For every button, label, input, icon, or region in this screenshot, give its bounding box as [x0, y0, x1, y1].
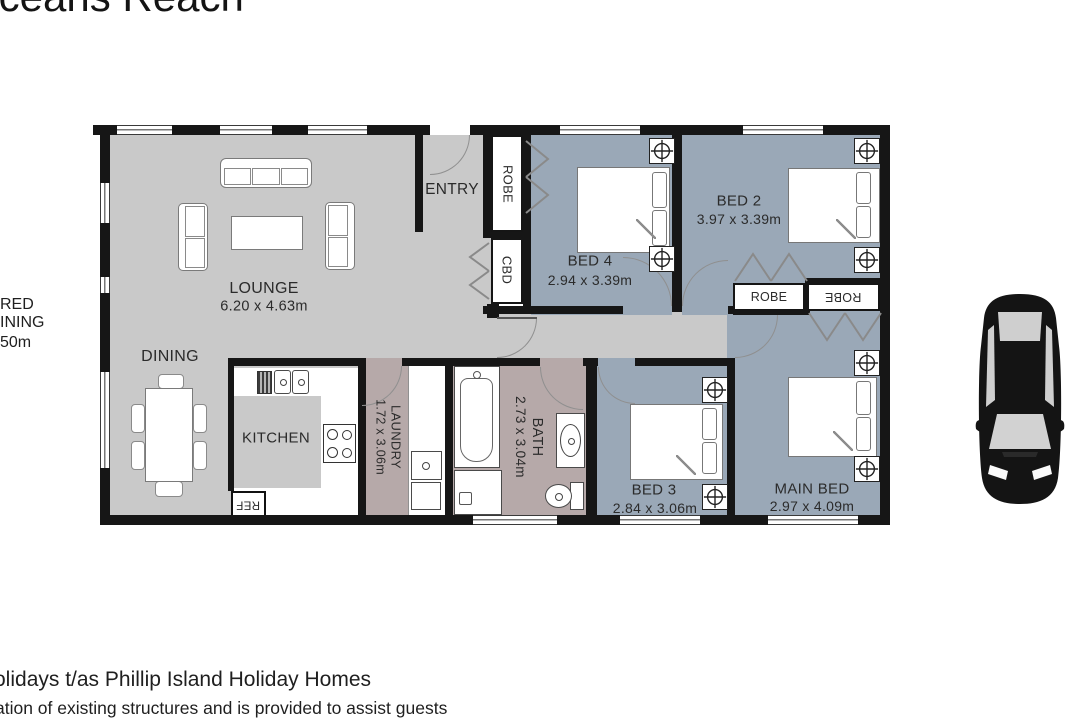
bed-fold — [833, 431, 853, 451]
sofa-cushion — [224, 168, 251, 185]
pillow-icon — [856, 172, 871, 204]
cbd-label: CBD — [499, 256, 514, 284]
wall — [100, 293, 110, 372]
window-icon — [560, 125, 640, 135]
dining-table-icon — [145, 388, 193, 482]
wall — [100, 125, 110, 183]
toilet-tank-icon — [570, 482, 584, 510]
left-text-fragment: 50m — [0, 334, 31, 352]
wall — [523, 135, 531, 312]
bath-label: BATH — [528, 396, 545, 478]
armchair-cushion — [185, 238, 205, 269]
bath-label-block: BATH 2.73 x 3.04m — [513, 396, 545, 478]
wall — [367, 125, 430, 135]
laundry-label-block: LAUNDRY 1.72 x 3.06m — [373, 399, 402, 475]
window-icon — [743, 125, 823, 135]
entry-label: ENTRY — [425, 181, 479, 199]
wall — [172, 125, 220, 135]
floor-plan-page: { "title": "Oceans Reach", "rooms": { "l… — [0, 0, 1080, 720]
ceiling-fan-icon — [854, 138, 880, 164]
armchair-icon — [325, 202, 355, 270]
bed-fold — [676, 455, 696, 475]
window-icon — [473, 515, 557, 525]
car-icon — [976, 294, 1065, 504]
armchair-cushion — [328, 205, 348, 236]
window-icon — [308, 125, 367, 135]
sofa-cushion — [281, 168, 308, 185]
left-text-fragment: INING — [0, 314, 44, 332]
robe-main-label: ROBE — [825, 290, 862, 304]
footer-line1: olidays t/as Phillip Island Holiday Home… — [0, 668, 371, 692]
hall-door-leaf — [497, 317, 537, 319]
dining-chair-icon — [131, 404, 145, 433]
window-icon — [100, 277, 110, 293]
wall — [586, 358, 597, 515]
window-icon — [220, 125, 272, 135]
pillow-icon — [856, 417, 871, 451]
pillow-icon — [652, 172, 667, 208]
dining-chair-icon — [158, 374, 184, 389]
washing-machine-icon — [411, 482, 441, 510]
wall — [880, 125, 890, 525]
wall — [557, 515, 620, 525]
laundry-label: LAUNDRY — [388, 399, 403, 475]
shower-icon — [454, 470, 502, 515]
main-bed-label: MAIN BED — [775, 480, 850, 497]
wall — [445, 363, 453, 515]
robe-hall-label: ROBE — [500, 165, 515, 203]
footer-line2: ation of existing structures and is prov… — [0, 698, 447, 719]
main-bed-dims: 2.97 x 4.09m — [770, 498, 855, 514]
wall — [640, 125, 743, 135]
toilet-bowl-icon — [545, 484, 572, 508]
wall — [491, 232, 523, 240]
ceiling-fan-icon — [702, 377, 728, 403]
pillow-icon — [702, 442, 717, 474]
page-title: Oceans Reach — [0, 0, 244, 21]
kitchen-label: KITCHEN — [242, 429, 310, 446]
bed2-dims: 3.97 x 3.39m — [697, 211, 782, 227]
wall — [415, 135, 423, 232]
window-icon — [768, 515, 858, 525]
bath-dims: 2.73 x 3.04m — [513, 396, 529, 478]
armchair-icon — [178, 203, 208, 271]
armchair-cushion — [328, 237, 348, 268]
wall — [402, 358, 540, 366]
ceiling-fan-icon — [854, 247, 880, 273]
window-icon — [100, 183, 110, 223]
wall — [483, 135, 491, 238]
wall — [100, 223, 110, 277]
coffee-table-icon — [231, 216, 303, 250]
sofa-cushion — [252, 168, 279, 185]
wall — [700, 515, 768, 525]
sink-bowl-icon — [274, 370, 291, 394]
ref-label: REF — [236, 497, 260, 510]
dining-label: DINING — [141, 348, 199, 366]
laundry-trough-icon — [411, 451, 442, 480]
wall — [272, 125, 308, 135]
pillow-icon — [856, 381, 871, 415]
ceiling-fan-icon — [649, 246, 675, 272]
left-text-fragment: RED — [0, 296, 34, 314]
lounge-label: LOUNGE — [229, 280, 298, 298]
wall — [803, 283, 809, 310]
armchair-cushion — [185, 206, 205, 237]
wall — [100, 515, 473, 525]
cooktop-icon — [323, 424, 356, 463]
wall — [805, 278, 882, 283]
wall — [487, 304, 499, 318]
robe-bed2-label: ROBE — [751, 290, 788, 304]
ceiling-fan-icon — [854, 350, 880, 376]
wall — [228, 358, 358, 366]
ceiling-fan-icon — [649, 138, 675, 164]
bathtub-icon — [454, 366, 500, 468]
dining-chair-icon — [193, 441, 207, 470]
window-icon — [117, 125, 172, 135]
bed-fold — [836, 219, 856, 239]
bed4-dims: 2.94 x 3.39m — [548, 272, 633, 288]
bed-fold — [636, 219, 656, 239]
vanity-icon — [556, 413, 585, 468]
dining-chair-icon — [193, 404, 207, 433]
wall — [635, 358, 735, 366]
sink-bowl-icon — [292, 370, 309, 394]
dining-chair-icon — [131, 441, 145, 470]
ceiling-fan-icon — [702, 484, 728, 510]
main-bed-door-gap — [727, 315, 735, 358]
wall — [228, 363, 234, 491]
bed3-dims: 2.84 x 3.06m — [613, 500, 698, 516]
drainer-icon — [257, 371, 272, 394]
window-icon — [100, 372, 110, 468]
pillow-icon — [702, 408, 717, 440]
wall — [727, 358, 735, 515]
dining-chair-icon — [155, 481, 183, 497]
wall — [470, 125, 560, 135]
pillow-icon — [856, 206, 871, 238]
ceiling-fan-icon — [854, 456, 880, 482]
laundry-dims: 1.72 x 3.06m — [373, 399, 387, 475]
wall — [483, 306, 623, 314]
bed2-label: BED 2 — [717, 192, 762, 209]
window-icon — [620, 515, 700, 525]
lounge-dims: 6.20 x 4.63m — [220, 299, 307, 316]
sofa-icon — [220, 158, 312, 188]
bed4-label: BED 4 — [568, 252, 613, 269]
bed3-label: BED 3 — [632, 481, 677, 498]
